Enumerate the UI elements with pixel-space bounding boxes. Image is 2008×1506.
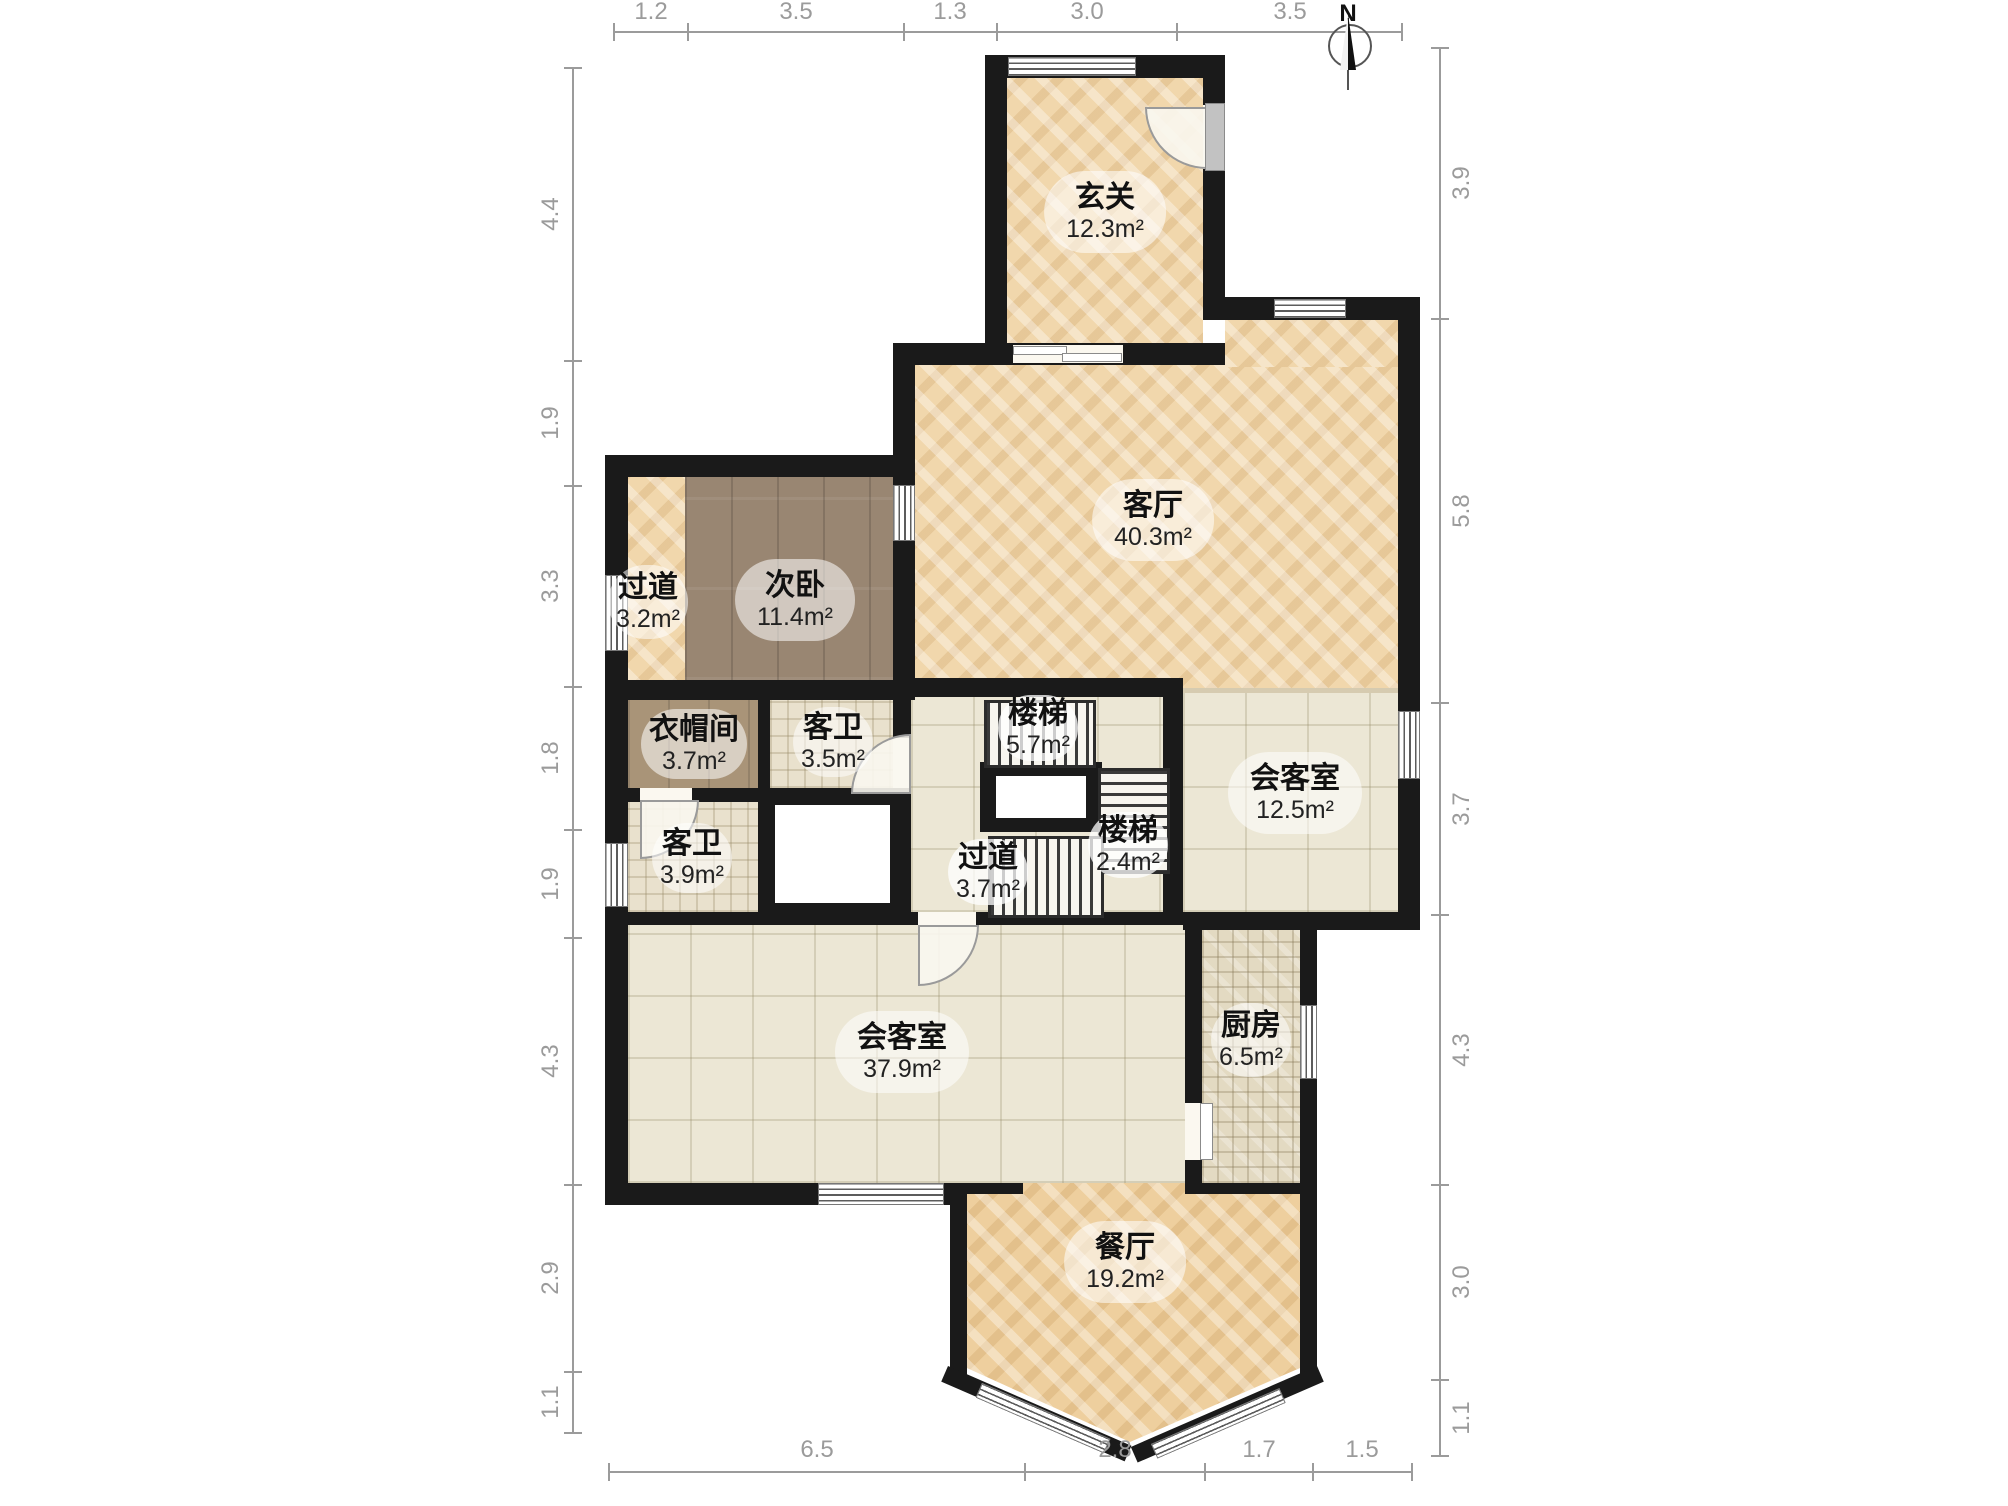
wall <box>1398 297 1420 930</box>
room-label-corridor-left: 过道 3.2m² <box>608 565 688 639</box>
dimension-label: 1.3 <box>933 0 966 26</box>
room-label-kitchen: 厨房 6.5m² <box>1211 1003 1291 1077</box>
dimension-label: 1.9 <box>537 867 565 900</box>
dimension-line-bottom <box>609 1471 1412 1473</box>
compass: N <box>1320 0 1376 92</box>
dimension-tick <box>1401 23 1403 41</box>
dimension-line-top <box>614 31 1402 33</box>
dimension-tick <box>564 360 582 362</box>
dimension-tick <box>1176 23 1178 41</box>
window-reception-bottom <box>818 1183 944 1205</box>
dimension-tick <box>1431 318 1449 320</box>
wall <box>950 1183 967 1380</box>
room-label-cloakroom: 衣帽间 3.7m² <box>641 709 747 779</box>
dimension-label: 2.8 <box>1098 1436 1131 1464</box>
dimension-label: 1.9 <box>537 406 565 439</box>
dimension-tick <box>564 937 582 939</box>
wall <box>605 455 628 1205</box>
dimension-tick <box>1431 47 1449 49</box>
dimension-label: 4.4 <box>537 197 565 230</box>
dimension-tick <box>1312 1463 1314 1481</box>
dimension-label: 3.0 <box>1070 0 1103 26</box>
dimension-label: 4.3 <box>1448 1033 1476 1066</box>
room-label-second-bedroom: 次卧 11.4m² <box>735 559 855 641</box>
room-label-reception-small: 会客室 12.5m² <box>1228 752 1362 834</box>
dimension-label: 1.5 <box>1345 1436 1378 1464</box>
dimension-label: 1.1 <box>537 1385 565 1418</box>
threshold-line <box>1183 688 1398 693</box>
window-bath2-left <box>605 843 628 907</box>
dimension-label: 3.3 <box>537 569 565 602</box>
dimension-tick <box>608 1463 610 1481</box>
room-label-corridor-mid: 过道 3.7m² <box>948 839 1028 905</box>
dimension-label: 5.8 <box>1448 494 1476 527</box>
dimension-tick <box>996 23 998 41</box>
room-label-reception-large: 会客室 37.9m² <box>835 1011 969 1093</box>
window-kitchen-right <box>1300 1005 1317 1079</box>
wall <box>605 455 915 477</box>
sliding-door-leaf <box>1062 353 1122 362</box>
dimension-line-left <box>572 68 574 1433</box>
dimension-label: 1.8 <box>537 741 565 774</box>
room-label-stairs-mid: 楼梯 2.4m² <box>1088 812 1168 878</box>
window-reception-right <box>1398 711 1420 779</box>
dimension-tick <box>613 23 615 41</box>
floor-plan: 玄关 12.3m² 客厅 40.3m² 过道 3.2m² 次卧 11.4m² 衣… <box>0 0 2008 1506</box>
dimension-label: 1.2 <box>634 0 667 26</box>
dimension-label: 1.7 <box>1242 1436 1275 1464</box>
dimension-label: 1.1 <box>1448 1401 1476 1434</box>
wall <box>893 697 911 738</box>
room-label-living-room: 客厅 40.3m² <box>1092 479 1214 561</box>
room-label-guest-bath-1: 客卫 3.5m² <box>793 707 873 777</box>
dimension-tick <box>1431 702 1449 704</box>
sliding-door-leaf <box>1013 346 1067 355</box>
floor-living-room-extension <box>1225 320 1398 367</box>
dimension-label: 6.5 <box>800 1436 833 1464</box>
dimension-tick <box>1024 1463 1026 1481</box>
dimension-tick <box>1431 1379 1449 1381</box>
dimension-tick <box>564 1184 582 1186</box>
door-opening-bedroom <box>893 485 915 541</box>
dimension-tick <box>1431 1184 1449 1186</box>
dimension-tick <box>1431 914 1449 916</box>
dimension-tick <box>1411 1463 1413 1481</box>
dimension-tick <box>564 829 582 831</box>
door-leaf-entry <box>1205 103 1225 171</box>
dimension-label: 3.5 <box>779 0 812 26</box>
room-label-entry-hall: 玄关 12.3m² <box>1044 171 1166 253</box>
dimension-line-right <box>1439 48 1441 1456</box>
dimension-label: 3.5 <box>1273 0 1306 26</box>
stairwell-void-inner <box>996 776 1086 818</box>
dimension-label: 3.7 <box>1448 792 1476 825</box>
room-label-stairs-upper: 楼梯 5.7m² <box>998 695 1078 761</box>
window-entry-top <box>1008 57 1136 76</box>
wall <box>1203 55 1225 320</box>
dimension-label: 3.0 <box>1448 1265 1476 1298</box>
wall <box>1300 912 1317 1380</box>
room-label-dining-room: 餐厅 19.2m² <box>1064 1221 1186 1303</box>
shaft-void-inner <box>775 805 890 903</box>
dimension-label: 2.9 <box>537 1261 565 1294</box>
room-label-guest-bath-2: 客卫 3.9m² <box>652 823 732 893</box>
door-leaf-kitchen <box>1200 1103 1213 1160</box>
wall <box>985 55 1007 365</box>
dimension-tick <box>564 1432 582 1434</box>
dimension-tick <box>687 23 689 41</box>
wall <box>1185 1183 1317 1194</box>
dimension-tick <box>1431 1455 1449 1457</box>
dimension-tick <box>564 1371 582 1373</box>
window-living-top <box>1274 299 1346 318</box>
dimension-tick <box>1204 1463 1206 1481</box>
door-opening-reception <box>918 912 976 925</box>
dimension-tick <box>903 23 905 41</box>
dimension-label: 3.9 <box>1448 166 1476 199</box>
wall <box>758 697 770 788</box>
dimension-label: 4.3 <box>537 1044 565 1077</box>
dimension-tick <box>564 686 582 688</box>
dimension-tick <box>564 67 582 69</box>
dimension-tick <box>564 485 582 487</box>
